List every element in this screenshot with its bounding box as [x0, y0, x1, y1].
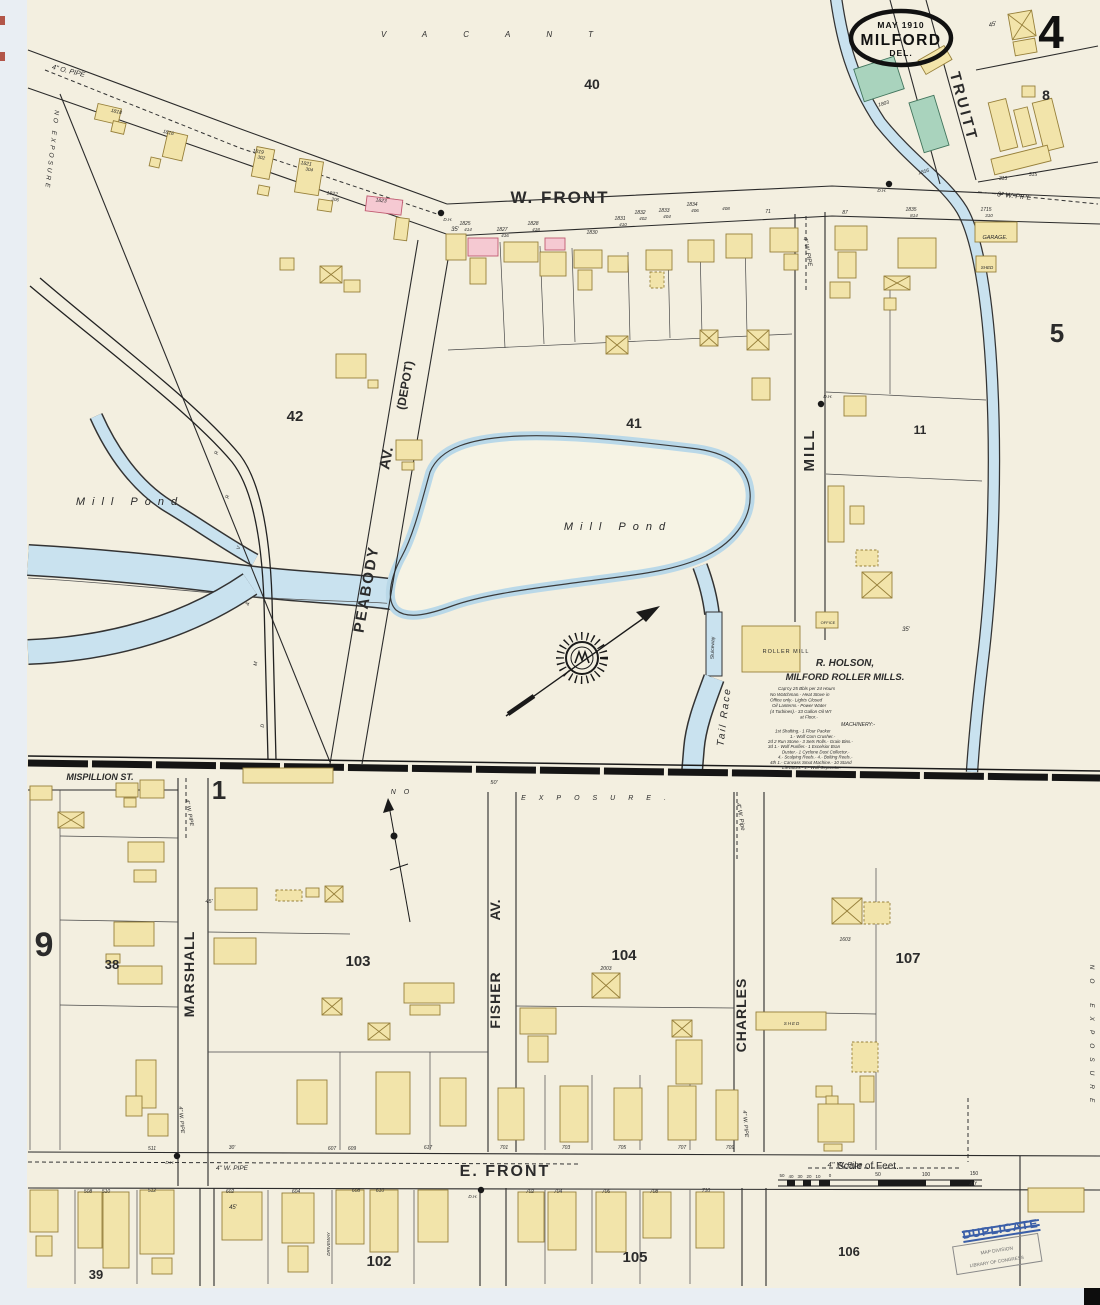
house-number: 701: [500, 1145, 509, 1151]
block-1: 1: [212, 775, 226, 805]
building: [898, 238, 936, 268]
house-number: 418: [532, 227, 540, 232]
scan-corner-black: [1084, 1288, 1100, 1305]
building: [124, 798, 136, 807]
scale-label: Scale of Feet.: [837, 1161, 899, 1172]
building: [747, 330, 769, 350]
area-vacant: VACANT: [381, 30, 629, 39]
street-fisher: FISHER: [487, 971, 503, 1028]
house-number: 1823: [375, 197, 387, 204]
building: [446, 234, 466, 260]
building: [856, 550, 878, 566]
house-number: 709: [726, 1145, 735, 1151]
building: [548, 1192, 576, 1250]
building: [818, 1104, 854, 1142]
building: [688, 240, 714, 262]
house-number: 705: [618, 1145, 627, 1151]
building: [884, 276, 910, 290]
street-mispillion: MISPILLION ST.: [66, 772, 133, 782]
hydrant-dot: [818, 401, 824, 407]
house-number: 87: [842, 210, 848, 216]
building: [832, 898, 862, 924]
map-canvas: MAY 1910 MILFORD DEL. 4 W. FRONTTRUITTPE…: [0, 0, 1100, 1305]
building: [30, 786, 52, 800]
building: [257, 185, 270, 196]
area-no-exposure-right: NO EXPOSURE: [1088, 965, 1095, 1112]
house-number: 602: [226, 1189, 235, 1195]
building: [306, 888, 319, 897]
sheet-number: 4: [1038, 6, 1064, 58]
building: [850, 506, 864, 524]
area-no: NO: [391, 789, 418, 796]
scale-bar: [778, 1180, 982, 1186]
building: [578, 270, 592, 290]
street-fisher-av: AV.: [487, 899, 503, 920]
note-line: (4 Turbines).- 33 Gallon Oil W'r: [770, 709, 832, 714]
building: [1022, 86, 1035, 97]
house-number: 703: [562, 1145, 571, 1151]
building: [148, 1114, 168, 1136]
building: [396, 440, 422, 460]
building: [1028, 1188, 1084, 1212]
scale-tick: 150: [970, 1171, 979, 1177]
building: [716, 1090, 738, 1140]
building: [770, 228, 798, 252]
house-number: 416: [501, 233, 509, 238]
building: [650, 272, 664, 288]
scale-tick: 50: [875, 1172, 881, 1178]
scale-tick: 10: [815, 1174, 821, 1179]
scale-tick: 30: [797, 1174, 803, 1179]
building: [103, 1192, 129, 1268]
building: [134, 870, 156, 882]
note-line: Oil Lanterns.- Power Water: [772, 703, 827, 708]
building: [606, 336, 628, 354]
block-106: 106: [838, 1244, 860, 1259]
title-cartouche: MAY 1910 MILFORD DEL.: [851, 11, 951, 65]
flag-dot: [391, 833, 398, 840]
street-marshall: MARSHALL: [181, 931, 197, 1018]
building: [540, 252, 566, 276]
block-38: 38: [105, 957, 119, 972]
building: [215, 888, 257, 910]
map-state: DEL.: [889, 48, 912, 58]
building: [696, 1192, 724, 1248]
building: [668, 1086, 696, 1140]
note-line: Office only.- Lights Closed: [770, 698, 823, 703]
dh-label: D.H.: [165, 1160, 174, 1165]
building: [118, 966, 162, 984]
note-line: at Floor.-: [800, 714, 818, 719]
block-11: 11: [914, 423, 927, 437]
building: [114, 922, 154, 946]
building: [608, 256, 628, 272]
dim-label: 50': [490, 780, 498, 786]
building: [838, 252, 856, 278]
building: [560, 1086, 588, 1142]
scale-tick: 20: [806, 1174, 812, 1179]
block-41: 41: [626, 415, 642, 431]
building: [528, 1036, 548, 1062]
block-104: 104: [611, 947, 637, 964]
building: [222, 1192, 262, 1240]
building: [830, 282, 850, 298]
note-line: Elevators.- 1.- Wolf Separator.-: [782, 765, 843, 770]
building: [862, 572, 892, 598]
house-number: 315: [1029, 172, 1038, 178]
block-42: 42: [287, 408, 304, 425]
house-number: 607: [328, 1146, 337, 1152]
building: [404, 983, 454, 1003]
building: [116, 783, 138, 797]
street-e-front: E. FRONT: [460, 1163, 551, 1180]
dim-label: 45': [229, 1205, 238, 1211]
block-107: 107: [895, 950, 920, 967]
building: [402, 462, 414, 470]
note-owner: R. HOLSON,: [816, 658, 874, 669]
building: [504, 242, 538, 262]
building: [288, 1246, 308, 1272]
house-number: 1830: [586, 230, 597, 236]
bldg-shed-1: SHED: [981, 265, 994, 270]
note-line: MACHINERY:-: [841, 722, 875, 728]
scale-seg: [878, 1181, 926, 1186]
note-line: Cap'cy 25 Bbls per 24 Hours: [778, 686, 836, 691]
building: [36, 1236, 52, 1256]
block-9: 9: [35, 926, 54, 964]
dim-label: 30': [229, 1145, 237, 1151]
label-driveway: DRIVEWAY: [326, 1231, 331, 1256]
building: [672, 1020, 692, 1037]
house-number: 704: [554, 1189, 563, 1195]
building: [336, 354, 366, 378]
hydrant-dot: [438, 210, 444, 216]
label-sluiceway: Sluiceway: [710, 636, 717, 659]
building: [152, 1258, 172, 1274]
building: [280, 258, 294, 270]
house-number: 410: [619, 222, 627, 227]
building: [816, 1086, 832, 1097]
building: [297, 1080, 327, 1124]
building: [498, 1088, 524, 1140]
street-charles: CHARLES: [733, 978, 749, 1053]
block-102: 102: [366, 1253, 391, 1270]
dim-label: 45': [205, 899, 213, 905]
house-number: 512: [148, 1188, 157, 1194]
block-39: 39: [89, 1267, 103, 1282]
building: [574, 250, 602, 268]
building: [325, 886, 343, 902]
building: [884, 298, 896, 310]
dim-label: 35': [902, 627, 911, 633]
building: [852, 1042, 878, 1072]
dim-label: 40': [969, 1182, 978, 1188]
house-number: 71: [765, 209, 771, 215]
map-date: MAY 1910: [877, 20, 924, 30]
bldg-roller-mill: ROLLER MILL: [763, 649, 810, 655]
dh-label: D.H.: [877, 188, 886, 193]
map-city: MILFORD: [860, 32, 941, 49]
building: [545, 238, 565, 250]
building: [58, 812, 84, 828]
dh-label: D.H.: [823, 394, 832, 399]
sanborn-map-sheet: MAY 1910 MILFORD DEL. 4 W. FRONTTRUITTPE…: [0, 0, 1100, 1305]
building: [394, 217, 410, 240]
note-name: MILFORD ROLLER MILLS.: [786, 672, 905, 683]
building: [344, 280, 360, 292]
house-number: 306: [331, 197, 340, 203]
house-number: 406: [691, 208, 699, 213]
house-number: 706: [602, 1189, 611, 1195]
building: [368, 1023, 390, 1040]
building: [614, 1088, 642, 1140]
building: [864, 902, 890, 924]
dim-label: 35': [451, 227, 460, 233]
building: [824, 1144, 842, 1151]
scale-tick: 40: [788, 1174, 794, 1179]
building: [440, 1078, 466, 1126]
house-number: 408: [722, 206, 730, 211]
scale-seg: [803, 1181, 811, 1186]
building: [596, 1192, 626, 1252]
building: [470, 258, 486, 284]
building: [376, 1072, 410, 1134]
area-mill-pond-center: Mill Pond: [564, 521, 672, 533]
house-number: 510: [102, 1189, 111, 1195]
house-number: 404: [663, 214, 671, 219]
building: [370, 1190, 398, 1252]
note-line: No Watchman.- Heat Stove in: [770, 692, 830, 697]
building: [643, 1192, 671, 1238]
building: [214, 938, 256, 964]
house-number: 313: [999, 176, 1008, 182]
area-mill-pond-west: Mill Pond: [76, 496, 184, 508]
building: [752, 378, 770, 400]
area-exposure: EXPOSURE.: [521, 795, 679, 802]
building: [140, 1190, 174, 1254]
building: [592, 973, 620, 998]
dh-label: D.H.: [443, 217, 452, 222]
house-number: 707: [678, 1145, 687, 1151]
scan-edge-mark: [0, 52, 5, 61]
house-number: 310: [985, 213, 993, 218]
house-number: 414: [464, 227, 472, 232]
block-103: 103: [345, 953, 370, 970]
building: [1008, 10, 1036, 40]
building: [140, 780, 164, 798]
block-8: 8: [1042, 87, 1050, 103]
house-number: 508: [84, 1189, 93, 1195]
bldg-garage: GARAGE.: [982, 235, 1007, 241]
house-number: 2003: [599, 966, 611, 972]
building: [368, 380, 378, 388]
building: [30, 1190, 58, 1232]
building: [149, 157, 161, 168]
building: [520, 1008, 556, 1034]
building: [282, 1193, 314, 1243]
building: [860, 1076, 874, 1102]
bldg-office: OFFICE: [821, 620, 836, 625]
house-number: 708: [650, 1189, 659, 1195]
block-105: 105: [622, 1249, 647, 1266]
building: [320, 266, 342, 283]
building: [844, 396, 866, 416]
building: [468, 238, 498, 256]
building: [784, 254, 798, 270]
house-number: 617: [424, 1145, 433, 1151]
building: [418, 1190, 448, 1242]
building: [336, 1190, 364, 1244]
house-number: 702: [526, 1189, 535, 1195]
building: [111, 121, 126, 135]
building: [518, 1192, 544, 1242]
bldg-shed-2: SHED: [784, 1021, 801, 1026]
hydrant-dot: [174, 1153, 180, 1159]
street-mill: MILL: [801, 429, 818, 472]
building: [828, 486, 844, 542]
house-number: 511: [148, 1146, 156, 1152]
building: [646, 250, 672, 270]
block-5: 5: [1050, 318, 1064, 348]
building: [276, 890, 302, 901]
house-number: 1603: [839, 937, 850, 943]
block-40: 40: [584, 76, 600, 92]
building: [126, 1096, 142, 1116]
house-number: 610: [376, 1188, 385, 1194]
scan-edge-mark: [0, 16, 5, 25]
building: [128, 842, 164, 862]
building: [726, 234, 752, 258]
house-number: 604: [292, 1189, 301, 1195]
building: [243, 768, 333, 783]
house-number: 608: [352, 1188, 361, 1194]
building: [835, 226, 867, 250]
pipe-label: 4" W. PIPE: [216, 1165, 249, 1172]
scale-seg: [787, 1181, 795, 1186]
dh-label: D.H.: [468, 1194, 477, 1199]
scale-tick: 100: [922, 1172, 931, 1178]
building: [410, 1005, 440, 1015]
house-number: 402: [639, 216, 647, 221]
hydrant-dot: [478, 1187, 484, 1193]
building: [700, 330, 718, 346]
scale-tick: 50: [779, 1173, 785, 1178]
building: [322, 998, 342, 1015]
building: [676, 1040, 702, 1084]
hydrant-dot: [886, 181, 892, 187]
building: [78, 1192, 102, 1248]
house-number: 710: [702, 1188, 711, 1194]
house-number: 609: [348, 1146, 357, 1152]
street-w-front: W. FRONT: [510, 188, 609, 207]
house-number: 814: [910, 213, 918, 218]
scale-seg: [819, 1181, 830, 1186]
